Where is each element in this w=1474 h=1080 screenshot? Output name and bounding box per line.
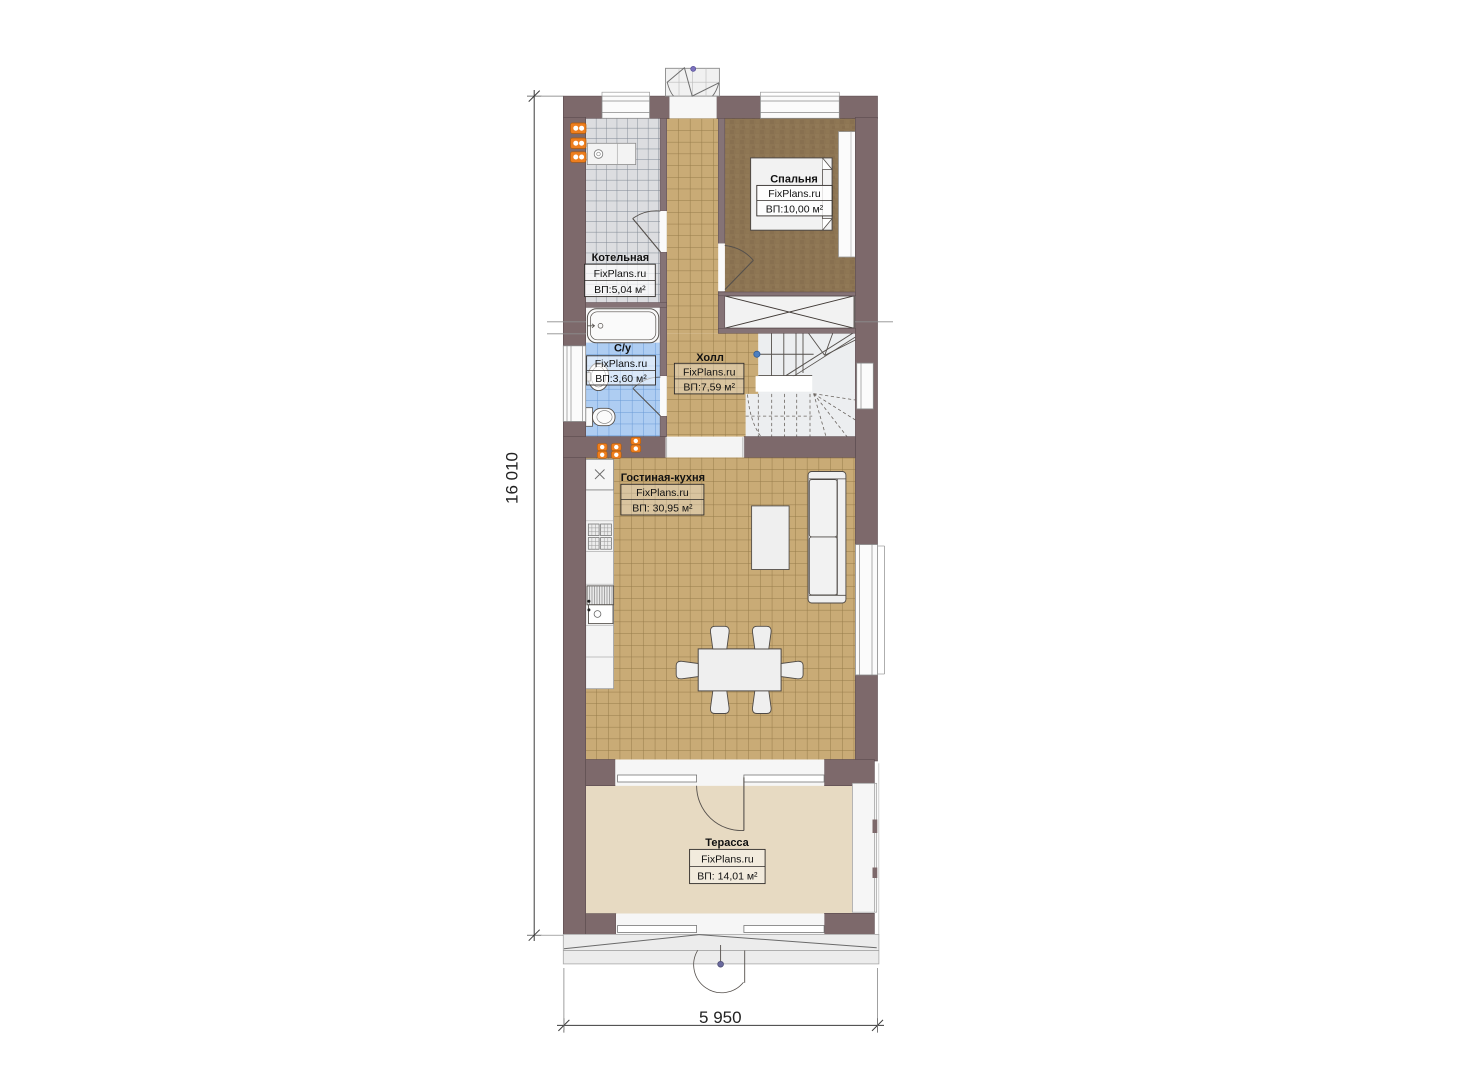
svg-text:ВП: 14,01 м²: ВП: 14,01 м² [697,871,758,883]
svg-text:Гостиная-кухня: Гостиная-кухня [621,472,705,484]
svg-text:ВП:3,60 м²: ВП:3,60 м² [595,373,647,385]
svg-text:Котельная: Котельная [592,252,650,264]
svg-text:FixPlans.ru: FixPlans.ru [683,367,736,379]
svg-text:16 010: 16 010 [503,452,522,504]
svg-text:ВП:5,04 м²: ВП:5,04 м² [594,284,646,296]
svg-text:FixPlans.ru: FixPlans.ru [768,188,821,200]
svg-text:ВП:10,00 м²: ВП:10,00 м² [766,203,824,215]
svg-text:С/у: С/у [614,343,632,355]
svg-text:FixPlans.ru: FixPlans.ru [701,854,754,866]
svg-text:FixPlans.ru: FixPlans.ru [595,358,648,370]
svg-text:FixPlans.ru: FixPlans.ru [594,268,647,280]
svg-text:Холл: Холл [696,352,724,364]
svg-text:ВП:7,59 м²: ВП:7,59 м² [683,382,735,394]
svg-text:5 950: 5 950 [699,1008,742,1027]
svg-text:ВП: 30,95 м²: ВП: 30,95 м² [632,502,693,514]
svg-text:Спальня: Спальня [770,173,818,185]
svg-text:FixPlans.ru: FixPlans.ru [636,487,689,499]
svg-text:Терасса: Терасса [705,837,749,849]
